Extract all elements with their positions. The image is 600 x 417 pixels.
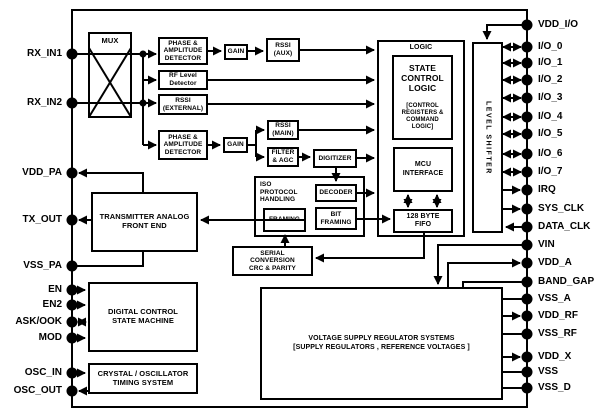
block-label: DIGITIZER: [318, 155, 351, 163]
block-label: PHASE & AMPLITUDE DETECTOR: [164, 134, 203, 157]
pin-label-band-gap: BAND_GAP: [538, 276, 600, 288]
pin-label-mod: MOD: [2, 332, 62, 344]
block-label: FILTER & AGC: [272, 149, 295, 164]
block-crystal-oscillator-timing: CRYSTAL / OSCILLATOR TIMING SYSTEM: [88, 363, 198, 394]
block-mux: MUX: [88, 32, 132, 118]
block-label: DECODER: [319, 189, 352, 197]
block-digitizer: DIGITIZER: [313, 149, 357, 168]
block-label: FRAMING: [269, 216, 300, 224]
block-decoder: DECODER: [315, 184, 357, 202]
pin-label-io0: I/O_0: [538, 41, 600, 53]
block-label: RSSI (EXTERNAL): [163, 97, 203, 112]
pin-label-io3: I/O_3: [538, 92, 600, 104]
pin-label-vdd-x: VDD_X: [538, 351, 600, 363]
block-label: TRANSMITTER ANALOG FRONT END: [100, 213, 190, 231]
block-128-byte-fifo: 128 BYTE FIFO: [393, 209, 453, 233]
pin-label-ask-ook: ASK/OOK: [2, 316, 62, 328]
block-label: RSSI (AUX): [274, 42, 293, 57]
pin-label-rx-in2: RX_IN2: [2, 97, 62, 109]
pin-label-io4: I/O_4: [538, 111, 600, 123]
block-label: DIGITAL CONTROL STATE MACHINE: [108, 308, 178, 326]
pin-label-osc-out: OSC_OUT: [2, 385, 62, 397]
block-state-control-logic: STATE CONTROL LOGIC [CONTROL REGISTERS &…: [392, 55, 453, 140]
pin-label-vss: VSS: [538, 366, 600, 378]
block-phase-amp-detector-top: PHASE & AMPLITUDE DETECTOR: [158, 37, 208, 65]
block-rf-level-detector: RF Level Detector: [158, 70, 208, 90]
block-serial-conversion: SERIAL CONVERSION CRC & PARITY: [232, 246, 313, 276]
pin-label-vss-d: VSS_D: [538, 382, 600, 394]
block-label: PHASE & AMPLITUDE DETECTOR: [164, 40, 203, 63]
block-mux-label: MUX: [102, 37, 119, 46]
block-label: MCU INTERFACE: [403, 161, 444, 178]
pin-label-vss-pa: VSS_PA: [2, 260, 62, 272]
pin-label-en2: EN2: [2, 299, 62, 311]
pin-label-vss-a: VSS_A: [538, 293, 600, 305]
pin-label-irq: IRQ: [538, 184, 600, 196]
block-bit-framing: BIT FRAMING: [315, 207, 357, 230]
block-level-shifter: LEVEL SHIFTER: [472, 42, 503, 233]
state-control-logic-label: STATE CONTROL LOGIC: [401, 63, 444, 93]
pin-label-rx-in1: RX_IN1: [2, 48, 62, 60]
pin-label-vin: VIN: [538, 239, 600, 251]
block-label: SERIAL CONVERSION CRC & PARITY: [249, 250, 296, 273]
control-registers-label: [CONTROL REGISTERS & COMMAND LOGIC]: [402, 103, 444, 131]
pin-label-vdd-rf: VDD_RF: [538, 310, 600, 322]
block-label: GAIN: [227, 141, 244, 149]
block-label: BIT FRAMING: [320, 211, 351, 226]
block-filter-agc: FILTER & AGC: [267, 147, 299, 167]
pin-label-sys-clk: SYS_CLK: [538, 203, 600, 215]
pin-label-data-clk: DATA_CLK: [538, 221, 600, 233]
block-transmitter-analog-front-end: TRANSMITTER ANALOG FRONT END: [91, 192, 198, 252]
pin-label-io5: I/O_5: [538, 128, 600, 140]
block-diagram: MUX PHASE & AMPLITUDE DETECTOR GAIN RSSI…: [0, 0, 600, 417]
pin-label-en: EN: [2, 284, 62, 296]
block-rssi-aux: RSSI (AUX): [266, 38, 300, 62]
pin-label-vdd-a: VDD_A: [538, 257, 600, 269]
block-label: GAIN: [228, 48, 245, 56]
block-digital-control-state-machine: DIGITAL CONTROL STATE MACHINE: [88, 282, 198, 352]
block-logic-title: LOGIC: [377, 43, 465, 53]
block-label: ISO PROTOCOL HANDLING: [260, 181, 298, 204]
block-gain-top: GAIN: [224, 44, 248, 60]
block-label: CRYSTAL / OSCILLATOR TIMING SYSTEM: [98, 370, 189, 388]
block-voltage-supply-regulator: VOLTAGE SUPPLY REGULATOR SYSTEMS [SUPPLY…: [260, 287, 503, 400]
block-label: LEVEL SHIFTER: [483, 101, 491, 175]
pin-label-io1: I/O_1: [538, 57, 600, 69]
block-label: LOGIC: [410, 44, 433, 52]
block-label: RSSI (MAIN): [272, 122, 294, 137]
pin-label-osc-in: OSC_IN: [2, 367, 62, 379]
block-label: VOLTAGE SUPPLY REGULATOR SYSTEMS [SUPPLY…: [293, 335, 470, 352]
block-phase-amp-detector-bottom: PHASE & AMPLITUDE DETECTOR: [158, 130, 208, 160]
pin-label-vdd-io: VDD_I/O: [538, 19, 600, 31]
block-mcu-interface: MCU INTERFACE: [393, 147, 453, 192]
pin-label-vdd-pa: VDD_PA: [2, 167, 62, 179]
pin-label-io2: I/O_2: [538, 74, 600, 86]
block-rssi-main: RSSI (MAIN): [267, 120, 299, 140]
block-rssi-external: RSSI (EXTERNAL): [158, 94, 208, 115]
pin-label-tx-out: TX_OUT: [2, 214, 62, 226]
pin-label-io7: I/O_7: [538, 166, 600, 178]
block-label: RF Level Detector: [169, 72, 197, 87]
block-framing: FRAMING: [263, 208, 306, 232]
block-label: 128 BYTE FIFO: [406, 213, 439, 230]
block-gain-bottom: GAIN: [223, 137, 248, 153]
pin-label-io6: I/O_6: [538, 148, 600, 160]
pin-label-vss-rf: VSS_RF: [538, 328, 600, 340]
